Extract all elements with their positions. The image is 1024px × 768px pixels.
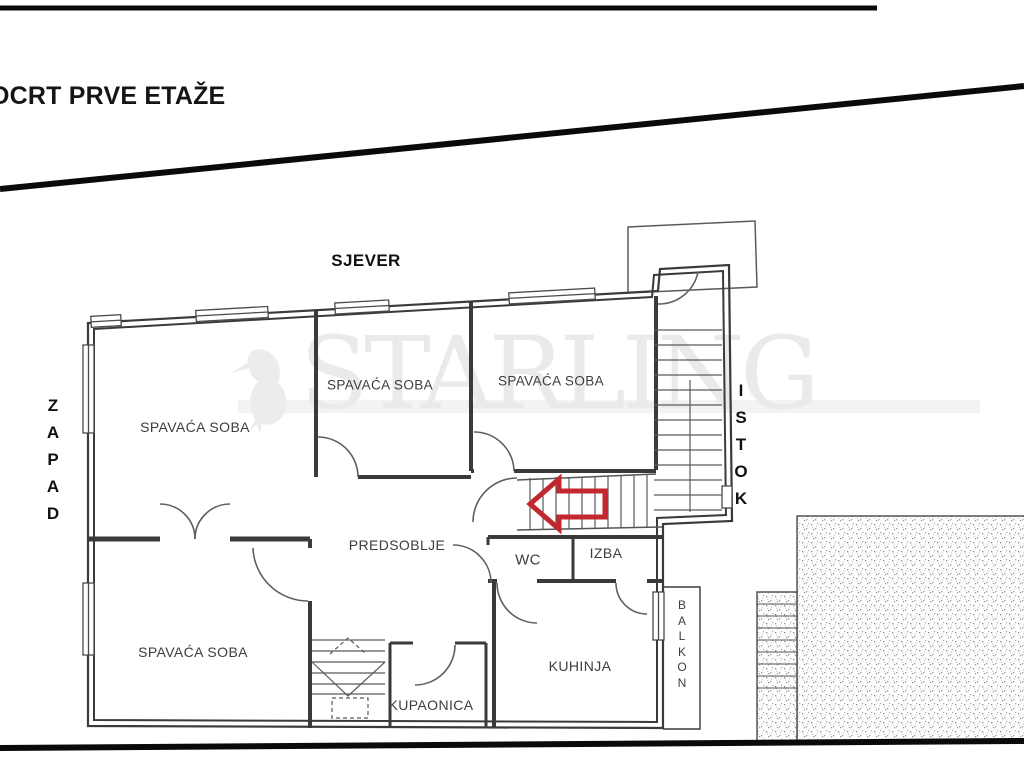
watermark: STARLING (232, 315, 980, 434)
room-label-wc: WC (515, 552, 541, 569)
room-label-bedroom-n: SPAVAĆA SOBA (327, 378, 433, 393)
stair-landing-outline (628, 221, 757, 293)
terrace-hatch (797, 516, 1024, 741)
room-label-kitchen: KUHINJA (549, 658, 612, 674)
door-arc-kitchen-balcony (616, 583, 647, 614)
stair-flight-edges (517, 474, 662, 530)
door-arc-wc (453, 545, 491, 583)
door-arc-bedroom-nw-left (160, 504, 195, 539)
door-arc-bedroom-n (318, 437, 358, 477)
door-arc-hall-stairs (473, 478, 517, 522)
plan-title: OCRT PRVE ETAŽE (0, 82, 225, 111)
door-arc-bedroom-ne (474, 432, 514, 471)
door-arc-stair-shaft (658, 272, 698, 304)
room-label-bathroom: KUPAONICA (388, 697, 473, 713)
room-label-bedroom-nw: SPAVAĆA SOBA (140, 419, 250, 435)
door-arc-kitchen (497, 583, 537, 623)
door-arc-bathroom (415, 645, 455, 685)
door-arc-bedroom-sw (253, 548, 308, 601)
compass-north-label: SJEVER (331, 251, 401, 271)
internal-staircase (312, 638, 385, 718)
room-label-hallway: PREDSOBLJE (349, 537, 446, 553)
room-label-bedroom-sw: SPAVAĆA SOBA (138, 644, 248, 660)
section-line-bottom (0, 741, 1024, 748)
room-label-balcony: BALKON (677, 598, 687, 691)
compass-west-label: ZAPAD (46, 392, 60, 527)
room-label-pantry: IZBA (590, 545, 623, 561)
terrace-steps-hatch (757, 592, 797, 741)
floor-plan-page: STARLING (0, 0, 1024, 768)
room-label-bedroom-ne: SPAVAĆA SOBA (498, 374, 604, 389)
compass-east-label: ISTOK (734, 377, 748, 512)
door-arc-bedroom-nw-right (195, 504, 230, 539)
direction-arrow (530, 479, 605, 529)
